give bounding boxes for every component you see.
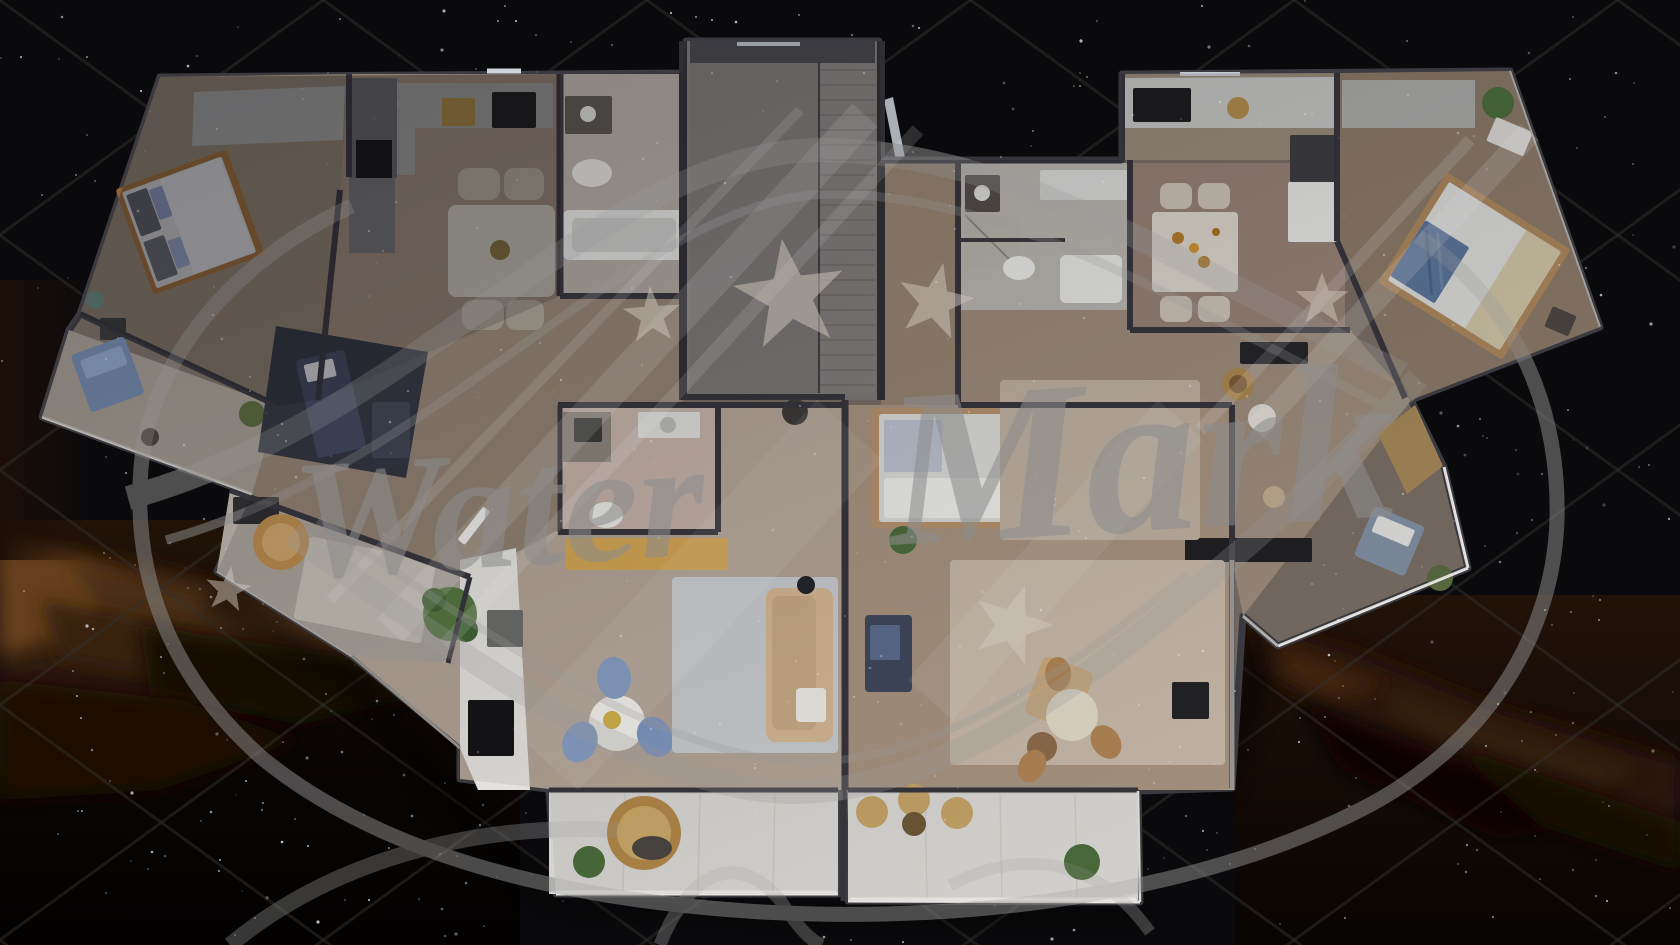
svg-text:Water: Water [287,403,711,615]
svg-text:Mark: Mark [876,317,1403,594]
